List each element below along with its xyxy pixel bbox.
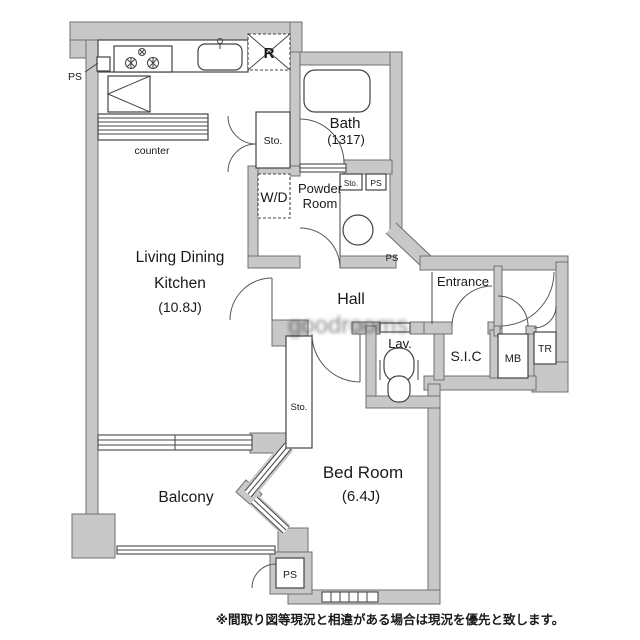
bath-size-label: (1317)	[327, 132, 365, 147]
wall-segment	[528, 334, 534, 376]
storage-bedroom-box	[286, 336, 312, 448]
watermark: goodrooms	[288, 312, 408, 339]
ps-label-topleft: PS	[68, 71, 82, 83]
storage-small-label: Sto.	[344, 179, 358, 188]
toilet-bowl	[388, 376, 410, 402]
balcony-pillar	[72, 514, 115, 558]
entrance-label: Entrance	[437, 274, 489, 289]
powder-door-arc	[300, 228, 340, 268]
wash-basin	[343, 215, 373, 245]
storage-double-door-upper	[228, 116, 256, 144]
ps-label-diagonal: PS	[386, 253, 399, 264]
counter-hatch	[98, 114, 208, 140]
wall-segment	[494, 266, 502, 328]
wall-segment	[344, 160, 392, 174]
wall-segment	[490, 330, 498, 378]
windows	[98, 435, 378, 602]
lav-label: Lav.	[388, 336, 412, 351]
bedroom-window	[322, 592, 378, 602]
ps-label-bottom: PS	[283, 569, 297, 581]
wall-segment	[248, 256, 300, 268]
wall-segment	[86, 40, 98, 533]
wall-segment	[248, 166, 258, 268]
bathtub	[304, 70, 370, 112]
balcony-label: Balcony	[158, 489, 213, 506]
floorplan-svg: R	[0, 0, 640, 640]
storage-bedroom-label: Sto.	[291, 402, 308, 413]
wall-segment	[532, 362, 568, 392]
storage-upper-label: Sto.	[264, 135, 283, 147]
sic-label: S.I.C	[450, 348, 481, 364]
kitchen-cabinet	[108, 76, 150, 112]
ps-label-small: PS	[370, 178, 382, 188]
wall-segment	[428, 384, 440, 604]
refrigerator-label: R	[264, 45, 275, 62]
wall-segment	[290, 52, 300, 174]
hall-label: Hall	[337, 291, 365, 308]
alcove-door-arc-right	[534, 306, 556, 328]
wall-segment	[424, 322, 452, 334]
wd-label: W/D	[260, 189, 287, 205]
wall-segment	[390, 52, 402, 230]
powder-label-line2: Room	[303, 196, 338, 211]
window-mid	[254, 500, 286, 530]
disclaimer-text: ※間取り図等現況と相違がある場合は現況を優先と致します。	[216, 612, 564, 627]
floorplan-canvas: R	[0, 0, 640, 640]
ps-box-topleft	[97, 57, 110, 71]
stove	[114, 46, 172, 72]
wall-segment	[290, 52, 402, 65]
tr-label: TR	[538, 343, 552, 355]
counter-label: counter	[134, 145, 170, 157]
mb-label: MB	[505, 353, 522, 365]
toilet	[380, 348, 418, 402]
refrigerator: R	[248, 34, 290, 70]
bedroom-label: Bed Room	[323, 463, 403, 482]
bath-label: Bath	[330, 115, 361, 132]
powder-label-line1: Powder	[298, 181, 343, 196]
entrance-door-arc	[452, 286, 492, 326]
ldk-hall-door-arc	[230, 278, 272, 320]
ldk-size-label: (10.8J)	[158, 299, 202, 315]
bedroom-size-label: (6.4J)	[342, 488, 380, 505]
bedroom-door-arc	[312, 334, 360, 382]
ldk-label-line1: Living Dining	[136, 249, 225, 266]
ldk-label-line2: Kitchen	[154, 275, 206, 292]
